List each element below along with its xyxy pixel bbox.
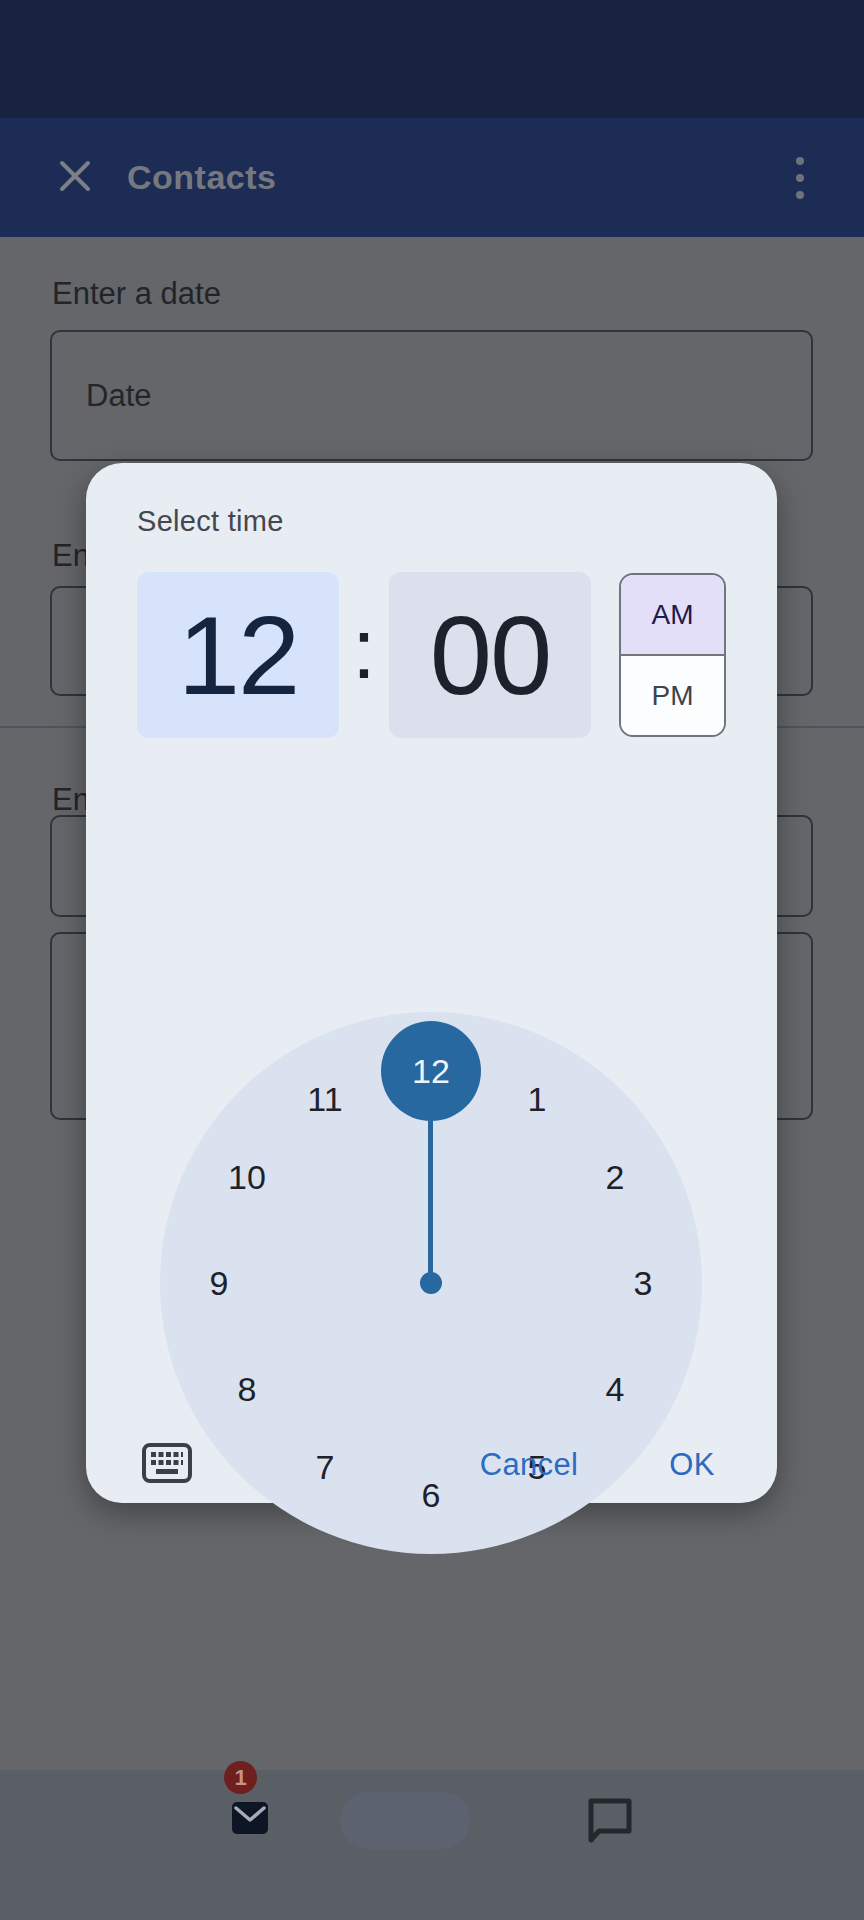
mail-badge: 1 [224, 1761, 257, 1794]
mail-active-pill [340, 1792, 470, 1849]
time-field-label-partial: En [52, 538, 90, 574]
page-title: Contacts [127, 118, 276, 237]
clock-number-3[interactable]: 3 [613, 1253, 673, 1313]
mail-tab-button[interactable]: 1 [150, 1770, 360, 1920]
dialog-footer: Cancel OK [86, 1426, 777, 1503]
overflow-dot [796, 157, 804, 165]
keyboard-input-mode-button[interactable] [136, 1436, 198, 1492]
date-field-label: Enter a date [52, 276, 221, 312]
overflow-dot [796, 191, 804, 199]
am-pm-toggle: AM PM [619, 573, 726, 737]
hour-field[interactable]: 12 [137, 572, 339, 738]
clock-number-11[interactable]: 11 [295, 1069, 355, 1129]
pm-option[interactable]: PM [621, 656, 724, 735]
close-icon [59, 160, 91, 195]
close-button[interactable] [40, 118, 110, 237]
clock-number-4[interactable]: 4 [585, 1359, 645, 1419]
clock-number-10[interactable]: 10 [217, 1147, 277, 1207]
time-separator: : [339, 648, 389, 662]
clock-number-2[interactable]: 2 [585, 1147, 645, 1207]
phone-screen: Contacts Enter a date Date En En 1 [0, 0, 864, 1920]
clock-center-dot [420, 1272, 442, 1294]
clock-hand [428, 1121, 433, 1283]
am-option-selected[interactable]: AM [621, 575, 724, 656]
keyboard-icon [142, 1443, 192, 1486]
mail-icon [232, 1802, 268, 1837]
ok-button[interactable]: OK [646, 1426, 738, 1503]
clock-number-8[interactable]: 8 [217, 1359, 277, 1419]
overflow-dot [796, 174, 804, 182]
app-bar: Contacts [0, 118, 864, 237]
status-bar [0, 0, 864, 118]
date-placeholder: Date [86, 378, 151, 414]
clock-number-1[interactable]: 1 [507, 1069, 567, 1129]
cancel-button[interactable]: Cancel [451, 1426, 607, 1503]
chat-tab-button[interactable] [540, 1770, 680, 1920]
minute-field[interactable]: 00 [389, 572, 591, 738]
chat-icon [585, 1796, 635, 1847]
dialog-title: Select time [137, 505, 284, 538]
overflow-menu-button[interactable] [770, 118, 830, 237]
clock-number-9[interactable]: 9 [189, 1253, 249, 1313]
time-display: 12 : 00 [137, 572, 591, 738]
date-input[interactable]: Date [50, 330, 813, 461]
second-field-label-partial: En [52, 782, 90, 818]
clock-selected-hour[interactable]: 12 [381, 1021, 481, 1121]
time-picker-dialog: Select time 12 : 00 AM PM 12 1 2 3 4 5 6… [86, 463, 777, 1503]
bottom-nav-bar: 1 [0, 1770, 864, 1920]
